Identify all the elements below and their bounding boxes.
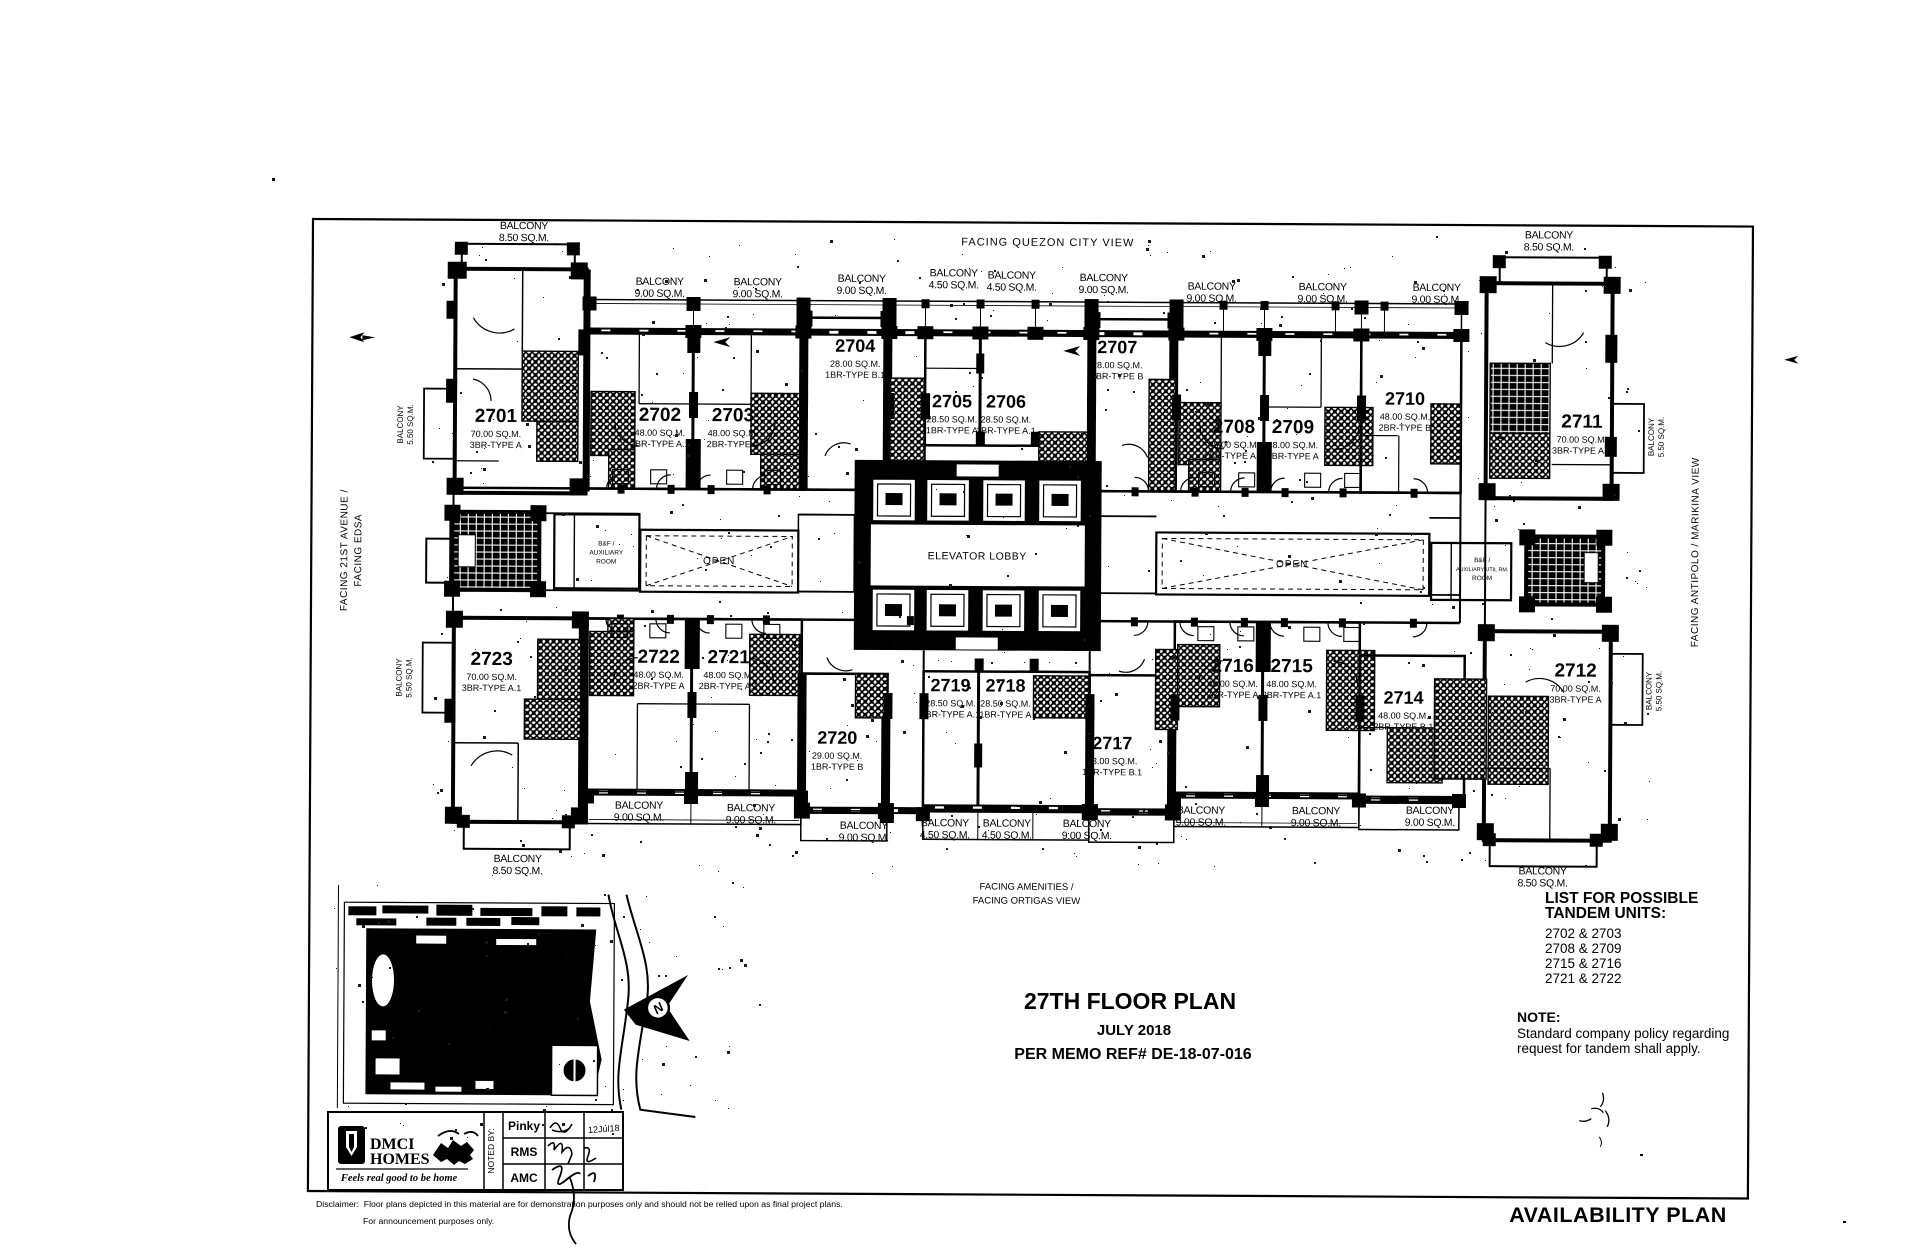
svg-text:B&F /: B&F / bbox=[598, 540, 614, 547]
svg-text:1BR-TYPE A.1: 1BR-TYPE A.1 bbox=[976, 425, 1036, 435]
svg-text:BALCONY: BALCONY bbox=[636, 276, 684, 288]
svg-text:2711: 2711 bbox=[1561, 412, 1603, 433]
svg-text:3BR-TYPE A.1: 3BR-TYPE A.1 bbox=[462, 683, 522, 693]
svg-text:BALCONY: BALCONY bbox=[983, 818, 1031, 830]
svg-text:FACING ANTIPOLO / MARIKINA VIE: FACING ANTIPOLO / MARIKINA VIEW bbox=[1690, 457, 1702, 647]
svg-text:2BR-TYPE A.1: 2BR-TYPE A.1 bbox=[699, 681, 759, 691]
svg-text:28.00 SQ.M.: 28.00 SQ.M. bbox=[1087, 756, 1138, 766]
svg-text:28.00 SQ.M.: 28.00 SQ.M. bbox=[830, 359, 881, 369]
svg-text:request for tandem shall apply: request for tandem shall apply. bbox=[1517, 1041, 1701, 1056]
svg-text:FACING ORTIGAS VIEW: FACING ORTIGAS VIEW bbox=[973, 895, 1081, 907]
svg-text:OPEN: OPEN bbox=[1276, 559, 1308, 570]
svg-text:ELEVATOR LOBBY: ELEVATOR LOBBY bbox=[928, 550, 1027, 563]
svg-text:FACING EDSA: FACING EDSA bbox=[353, 514, 364, 587]
svg-text:2708 & 2709: 2708 & 2709 bbox=[1545, 941, 1622, 956]
svg-text:HOMES: HOMES bbox=[370, 1151, 430, 1168]
svg-text:9.00 SQ.M.: 9.00 SQ.M. bbox=[1187, 293, 1237, 305]
svg-text:2707: 2707 bbox=[1097, 337, 1137, 357]
svg-text:2715: 2715 bbox=[1270, 656, 1313, 677]
svg-text:8.50 SQ.M.: 8.50 SQ.M. bbox=[492, 865, 542, 877]
svg-text:70.00 SQ.M.: 70.00 SQ.M. bbox=[466, 672, 517, 682]
svg-text:2719: 2719 bbox=[930, 675, 970, 695]
svg-text:2710: 2710 bbox=[1385, 389, 1425, 409]
svg-text:48.00 SQ.M.: 48.00 SQ.M. bbox=[1268, 440, 1319, 450]
svg-text:5.50 SQ.M.: 5.50 SQ.M. bbox=[406, 404, 415, 445]
svg-text:28.50 SQ.M.: 28.50 SQ.M. bbox=[925, 698, 976, 708]
svg-text:5.50 SQ.M.: 5.50 SQ.M. bbox=[1654, 671, 1663, 712]
svg-text:3BR-TYPE A.1: 3BR-TYPE A.1 bbox=[1552, 445, 1612, 455]
svg-text:B&F /: B&F / bbox=[1474, 557, 1490, 564]
svg-text:BALCONY: BALCONY bbox=[840, 820, 888, 832]
svg-text:JULY 2018: JULY 2018 bbox=[1097, 1022, 1171, 1039]
svg-text:BALCONY: BALCONY bbox=[494, 853, 542, 865]
svg-text:BALCONY: BALCONY bbox=[394, 658, 403, 697]
svg-text:RMS: RMS bbox=[511, 1145, 538, 1159]
svg-text:NOTED BY:: NOTED BY: bbox=[486, 1128, 496, 1173]
svg-text:FACING AMENITIES /: FACING AMENITIES / bbox=[979, 881, 1073, 892]
svg-text:9.00 SQ.M.: 9.00 SQ.M. bbox=[1412, 294, 1462, 306]
svg-text:9.00 SQ.M.: 9.00 SQ.M. bbox=[726, 814, 776, 826]
svg-text:BALCONY: BALCONY bbox=[500, 220, 548, 232]
svg-text:48.00 SQ.M.: 48.00 SQ.M. bbox=[1266, 679, 1317, 689]
svg-text:BALCONY: BALCONY bbox=[1299, 281, 1347, 293]
svg-text:BALCONY: BALCONY bbox=[1519, 865, 1567, 877]
svg-text:BALCONY: BALCONY bbox=[921, 817, 969, 829]
svg-text:Standard company policy regard: Standard company policy regarding bbox=[1517, 1026, 1729, 1041]
svg-text:BALCONY: BALCONY bbox=[1063, 818, 1111, 830]
svg-text:BALCONY: BALCONY bbox=[396, 405, 405, 444]
svg-text:TANDEM UNITS:: TANDEM UNITS: bbox=[1545, 905, 1666, 922]
svg-text:2717: 2717 bbox=[1092, 733, 1132, 753]
svg-text:For announcement purposes only: For announcement purposes only. bbox=[363, 1216, 494, 1226]
svg-text:1BR-TYPE B.1: 1BR-TYPE B.1 bbox=[1082, 767, 1142, 777]
svg-text:ROOM: ROOM bbox=[596, 558, 616, 565]
svg-text:2721 & 2722: 2721 & 2722 bbox=[1545, 971, 1622, 986]
svg-text:2708: 2708 bbox=[1213, 417, 1255, 438]
svg-text:4.50 SQ.M.: 4.50 SQ.M. bbox=[929, 279, 979, 291]
svg-text:2722: 2722 bbox=[638, 647, 680, 668]
svg-text:BALCONY: BALCONY bbox=[1292, 805, 1340, 817]
svg-text:2BR-TYPE A.1: 2BR-TYPE A.1 bbox=[1262, 690, 1322, 700]
svg-text:BALCONY: BALCONY bbox=[1525, 229, 1573, 241]
svg-text:2BR-TYPE A.1: 2BR-TYPE A.1 bbox=[630, 439, 690, 449]
svg-text:2704: 2704 bbox=[835, 336, 875, 356]
svg-text:AUXILIARY: AUXILIARY bbox=[589, 549, 624, 556]
svg-text:4.50 SQ.M.: 4.50 SQ.M. bbox=[987, 282, 1037, 294]
svg-text:2BR-TYPE B: 2BR-TYPE B bbox=[1379, 423, 1432, 433]
svg-text:BALCONY: BALCONY bbox=[1080, 272, 1128, 284]
svg-text:2BR-TYPE A.1: 2BR-TYPE A.1 bbox=[1204, 451, 1264, 461]
svg-text:1BR-TYPE A.1: 1BR-TYPE A.1 bbox=[921, 709, 981, 719]
svg-text:BALCONY: BALCONY bbox=[1413, 282, 1461, 294]
svg-text:29.00 SQ.M.: 29.00 SQ.M. bbox=[812, 751, 863, 761]
svg-text:2705: 2705 bbox=[932, 391, 972, 411]
svg-text:9.00 SQ.M.: 9.00 SQ.M. bbox=[635, 288, 685, 300]
svg-text:9.00 SQ.M.: 9.00 SQ.M. bbox=[614, 812, 664, 824]
svg-text:BALCONY: BALCONY bbox=[615, 800, 663, 812]
svg-text:OPEN: OPEN bbox=[703, 556, 735, 567]
svg-text:48.00 SQ.M.: 48.00 SQ.M. bbox=[708, 428, 759, 438]
svg-text:PER MEMO REF# DE-18-07-016: PER MEMO REF# DE-18-07-016 bbox=[1014, 1046, 1252, 1063]
svg-text:3BR-TYPE A: 3BR-TYPE A bbox=[1549, 694, 1601, 704]
svg-text:9.00 SQ.M.: 9.00 SQ.M. bbox=[1291, 817, 1341, 829]
svg-text:9.00 SQ.M.: 9.00 SQ.M. bbox=[837, 285, 887, 297]
svg-text:28.50 SQ.M.: 28.50 SQ.M. bbox=[980, 699, 1031, 709]
svg-text:2714: 2714 bbox=[1383, 688, 1423, 708]
svg-text:BALCONY: BALCONY bbox=[727, 802, 775, 814]
svg-text:9.00 SQ.M.: 9.00 SQ.M. bbox=[1298, 293, 1348, 305]
svg-text:AUXILIARY UTIL RM.: AUXILIARY UTIL RM. bbox=[1456, 567, 1508, 573]
svg-text:AVAILABILITY PLAN: AVAILABILITY PLAN bbox=[1509, 1203, 1727, 1227]
svg-text:4.50 SQ.M.: 4.50 SQ.M. bbox=[920, 829, 970, 841]
svg-text:48.00 SQ.M.: 48.00 SQ.M. bbox=[1380, 412, 1431, 422]
svg-text:2703: 2703 bbox=[712, 405, 754, 426]
svg-text:28.00 SQ.M.: 28.00 SQ.M. bbox=[1092, 360, 1143, 370]
svg-text:BALCONY: BALCONY bbox=[734, 276, 782, 288]
svg-text:2715 & 2716: 2715 & 2716 bbox=[1545, 956, 1622, 971]
svg-text:2720: 2720 bbox=[817, 728, 857, 748]
svg-text:48.00 SQ.M.: 48.00 SQ.M. bbox=[1378, 711, 1429, 721]
svg-text:Disclaimer: Floor plans depic: Disclaimer: Floor plans depicted in this… bbox=[316, 1199, 843, 1209]
svg-text:28.50 SQ.M.: 28.50 SQ.M. bbox=[981, 414, 1032, 424]
svg-text:9.00 SQ.M.: 9.00 SQ.M. bbox=[1079, 284, 1129, 296]
svg-text:1BR-TYPE B.1: 1BR-TYPE B.1 bbox=[825, 370, 885, 380]
svg-text:70.00 SQ.M.: 70.00 SQ.M. bbox=[471, 429, 522, 439]
svg-text:5.50 SQ.M.: 5.50 SQ.M. bbox=[404, 657, 413, 698]
svg-text:48.00 SQ.M.: 48.00 SQ.M. bbox=[633, 670, 684, 680]
svg-text:28.50 SQ.M.: 28.50 SQ.M. bbox=[927, 414, 978, 424]
svg-text:48.00 SQ.M.: 48.00 SQ.M. bbox=[703, 670, 754, 680]
svg-text:48.00 SQ.M.: 48.00 SQ.M. bbox=[1209, 440, 1260, 450]
svg-text:8.50 SQ.M.: 8.50 SQ.M. bbox=[1524, 241, 1574, 253]
svg-text:70.00 SQ.M.: 70.00 SQ.M. bbox=[1557, 435, 1608, 445]
svg-text:27TH FLOOR PLAN: 27TH FLOOR PLAN bbox=[1024, 988, 1236, 1014]
svg-text:2BR-TYPE A: 2BR-TYPE A bbox=[633, 681, 685, 691]
svg-text:2709: 2709 bbox=[1272, 417, 1314, 438]
svg-text:2718: 2718 bbox=[985, 676, 1025, 696]
svg-text:8.50 SQ.M.: 8.50 SQ.M. bbox=[499, 232, 549, 244]
svg-text:4.50 SQ.M.: 4.50 SQ.M. bbox=[982, 830, 1032, 842]
svg-text:1BR-TYPE B: 1BR-TYPE B bbox=[1091, 371, 1144, 381]
svg-text:ROOM: ROOM bbox=[1472, 575, 1492, 582]
svg-text:9.00 SQ.M.: 9.00 SQ.M. bbox=[1062, 830, 1112, 842]
svg-text:5.50 SQ.M.: 5.50 SQ.M. bbox=[1657, 417, 1666, 458]
svg-text:2721: 2721 bbox=[708, 647, 751, 668]
svg-text:1BR-TYPE A: 1BR-TYPE A bbox=[926, 425, 978, 435]
svg-text:BALCONY: BALCONY bbox=[930, 267, 978, 279]
svg-text:2BR-TYPE A: 2BR-TYPE A bbox=[1267, 451, 1319, 461]
svg-text:AMC: AMC bbox=[510, 1171, 538, 1185]
svg-text:2706: 2706 bbox=[986, 392, 1026, 412]
svg-text:FACING QUEZON CITY VIEW: FACING QUEZON CITY VIEW bbox=[961, 236, 1134, 249]
svg-text:9.00 SQ.M.: 9.00 SQ.M. bbox=[1176, 817, 1226, 829]
svg-text:2702 & 2703: 2702 & 2703 bbox=[1545, 926, 1622, 941]
svg-text:3BR-TYPE A: 3BR-TYPE A bbox=[470, 440, 522, 450]
svg-text:8.50 SQ.M.: 8.50 SQ.M. bbox=[1517, 877, 1567, 889]
svg-text:BALCONY: BALCONY bbox=[1647, 417, 1656, 456]
svg-text:48.00 SQ.M.: 48.00 SQ.M. bbox=[1207, 679, 1258, 689]
svg-text:NOTE:: NOTE: bbox=[1517, 1009, 1561, 1025]
svg-text:BALCONY: BALCONY bbox=[1188, 281, 1236, 293]
svg-text:2712: 2712 bbox=[1554, 661, 1596, 682]
svg-text:2701: 2701 bbox=[475, 406, 518, 427]
svg-text:Pinky: Pinky bbox=[508, 1119, 540, 1133]
svg-text:9.00 SQ.M.: 9.00 SQ.M. bbox=[733, 288, 783, 300]
svg-text:BALCONY: BALCONY bbox=[838, 273, 886, 285]
svg-text:9.00 SQ.M.: 9.00 SQ.M. bbox=[1405, 817, 1455, 829]
svg-text:2BR-TYPE A: 2BR-TYPE A bbox=[1206, 690, 1258, 700]
svg-text:BALCONY: BALCONY bbox=[1406, 805, 1454, 817]
svg-text:1BR-TYPE A: 1BR-TYPE A bbox=[979, 709, 1031, 719]
svg-text:1BR-TYPE B: 1BR-TYPE B bbox=[811, 762, 864, 772]
svg-text:2723: 2723 bbox=[470, 649, 512, 670]
svg-text:BALCONY: BALCONY bbox=[1644, 671, 1653, 710]
svg-text:2BR-TYPE A: 2BR-TYPE A bbox=[707, 439, 759, 449]
svg-text:FACING 21ST AVENUE /: FACING 21ST AVENUE / bbox=[339, 489, 351, 611]
svg-text:BALCONY: BALCONY bbox=[1177, 805, 1225, 817]
svg-text:2716: 2716 bbox=[1211, 656, 1253, 677]
svg-text:Feels real good to be home: Feels real good to be home bbox=[340, 1173, 458, 1184]
svg-text:2702: 2702 bbox=[639, 405, 681, 426]
svg-text:9.00 SQ.M.: 9.00 SQ.M. bbox=[839, 832, 889, 844]
